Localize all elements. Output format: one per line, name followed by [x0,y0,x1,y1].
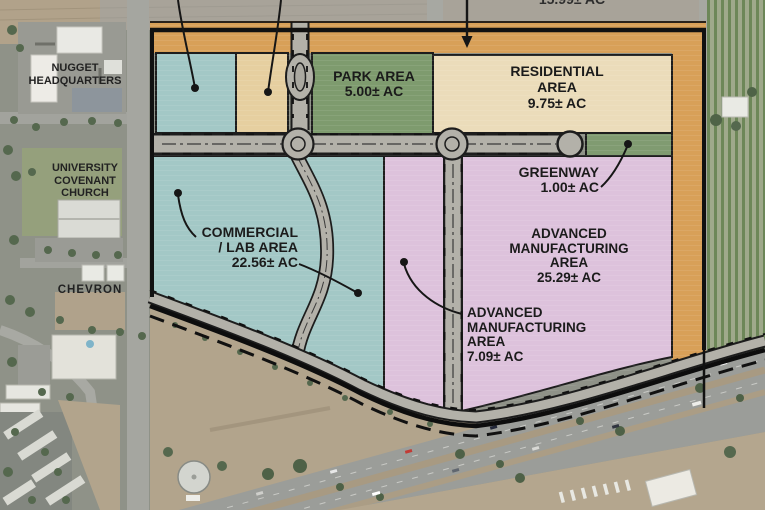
context-label-university-covenant-church: UNIVERSITY COVENANT CHURCH [52,162,118,200]
orchard-field [706,0,765,352]
parcel-label-greenway: GREENWAY 1.00± AC [519,165,599,195]
culdesac-bulb [558,132,583,157]
context-label-chevron: CHEVRON [58,284,123,297]
parcel-label-adv-mfg-small: ADVANCED MANUFACTURING AREA 7.09± AC [467,306,586,364]
context-label-nugget-headquarters: NUGGET HEADQUARTERS [29,62,122,87]
roundabout-east [437,129,468,160]
parcel-label-park-area: PARK AREA 5.00± AC [333,69,415,99]
land-use-site-plan-map: 15.99± AC NUGGET HEADQUARTERS UNIVERSITY… [0,0,765,510]
parcel-label-commercial-lab-area: COMMERCIAL / LAB AREA 22.56± AC [202,225,298,270]
roundabout-west [283,129,314,160]
parcel-label-residential-area: RESIDENTIAL AREA 9.75± AC [510,63,603,111]
offsite-area-note: 15.99± AC [539,0,605,7]
parcel-label-adv-mfg-large: ADVANCED MANUFACTURING AREA 25.29± AC [509,227,628,285]
entrance-median-island [295,63,306,91]
